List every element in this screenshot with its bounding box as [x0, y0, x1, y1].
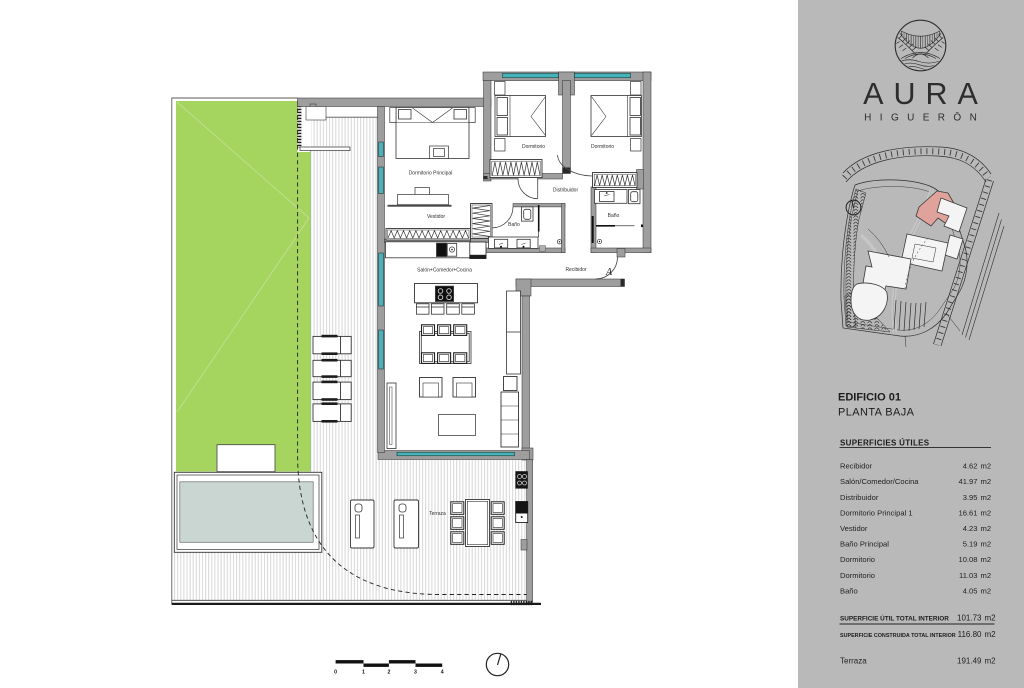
svg-text:4.62: 4.62	[963, 461, 978, 470]
svg-text:Distribuidor: Distribuidor	[840, 493, 879, 502]
svg-text:Baño Principal: Baño Principal	[840, 539, 889, 548]
svg-text:AURA: AURA	[863, 77, 988, 111]
svg-text:m2: m2	[981, 586, 992, 595]
svg-text:m2: m2	[981, 524, 992, 533]
svg-text:16.61: 16.61	[958, 508, 977, 517]
svg-text:3: 3	[414, 670, 417, 676]
svg-text:SUPERFICIES ÚTILES: SUPERFICIES ÚTILES	[840, 439, 930, 448]
svg-text:10.08: 10.08	[958, 555, 977, 564]
svg-text:m2: m2	[981, 571, 992, 580]
svg-text:Dormitorio Principal 1: Dormitorio Principal 1	[840, 508, 913, 517]
svg-text:4.23: 4.23	[963, 524, 978, 533]
svg-text:Distribuidor: Distribuidor	[553, 188, 579, 194]
svg-text:Terraza: Terraza	[429, 511, 446, 517]
svg-text:Vestidor: Vestidor	[427, 214, 445, 220]
svg-text:PLANTA BAJA: PLANTA BAJA	[838, 407, 915, 419]
svg-text:A: A	[605, 267, 613, 278]
svg-text:Baño: Baño	[840, 586, 858, 595]
svg-text:SUPERFICIE CONSTRUIDA TOTAL IN: SUPERFICIE CONSTRUIDA TOTAL INTERIOR	[840, 633, 956, 639]
svg-text:Vestidor: Vestidor	[840, 524, 868, 533]
svg-text:m2: m2	[985, 657, 997, 666]
svg-text:m2: m2	[981, 555, 992, 564]
svg-text:2: 2	[387, 670, 390, 676]
svg-text:0: 0	[334, 670, 337, 676]
svg-text:m2: m2	[985, 614, 997, 623]
svg-text:4.05: 4.05	[963, 586, 978, 595]
svg-text:41.97: 41.97	[958, 477, 977, 486]
svg-text:EDIFICIO 01: EDIFICIO 01	[838, 392, 901, 404]
svg-text:1: 1	[362, 670, 365, 676]
svg-text:Salón+Comedor+Cocina: Salón+Comedor+Cocina	[417, 268, 472, 274]
svg-text:Salón/Comedor/Cocina: Salón/Comedor/Cocina	[840, 477, 919, 486]
svg-text:Dormitorio: Dormitorio	[840, 555, 875, 564]
svg-text:Baño: Baño	[508, 222, 520, 228]
svg-text:Dormitorio Principal: Dormitorio Principal	[409, 171, 453, 177]
svg-text:SUPERFICIE ÚTIL TOTAL INTERIOR: SUPERFICIE ÚTIL TOTAL INTERIOR	[840, 614, 949, 623]
svg-text:191.49: 191.49	[957, 657, 982, 666]
svg-text:116.80: 116.80	[958, 630, 982, 639]
svg-text:m2: m2	[981, 461, 992, 470]
svg-text:Dormitorio: Dormitorio	[591, 144, 614, 150]
svg-text:HIGUERŌN: HIGUERŌN	[864, 112, 985, 124]
svg-text:m2: m2	[981, 508, 992, 517]
svg-text:m2: m2	[985, 630, 997, 639]
svg-text:m2: m2	[981, 493, 992, 502]
svg-text:Recibidor: Recibidor	[565, 267, 586, 273]
svg-text:Dormitorio: Dormitorio	[522, 144, 545, 150]
svg-text:Terraza: Terraza	[840, 657, 867, 666]
svg-text:11.03: 11.03	[959, 571, 977, 580]
svg-text:m2: m2	[981, 477, 992, 486]
svg-text:101.73: 101.73	[957, 614, 982, 623]
svg-text:Baño: Baño	[608, 213, 620, 219]
svg-text:Recibidor: Recibidor	[840, 461, 873, 470]
svg-text:m2: m2	[981, 539, 992, 548]
svg-text:5.19: 5.19	[963, 539, 978, 548]
svg-text:4: 4	[441, 670, 444, 676]
svg-text:3.95: 3.95	[963, 493, 978, 502]
svg-text:Dormitorio: Dormitorio	[840, 571, 875, 580]
